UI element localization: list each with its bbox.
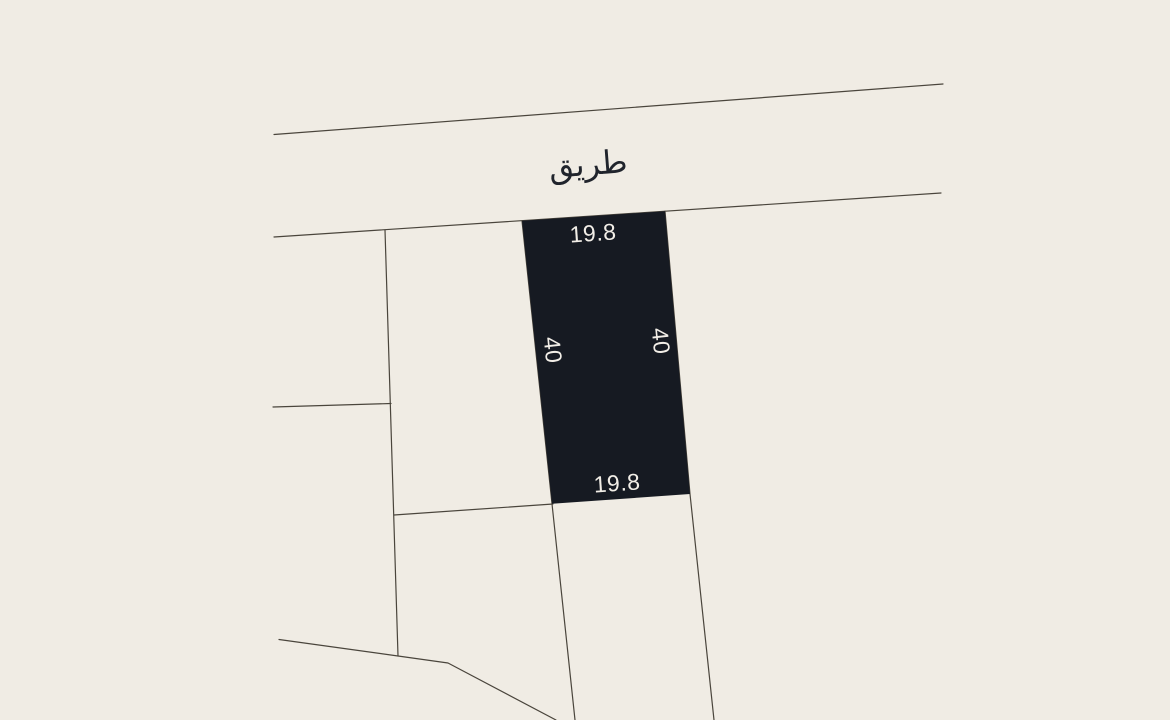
dimension-left-label: 40 <box>539 335 568 364</box>
road-label-group: طريق <box>547 142 628 186</box>
plot-map-svg: طريق 19.8 19.8 40 40 <box>0 0 1170 720</box>
cadastral-map: طريق 19.8 19.8 40 40 <box>0 0 1170 720</box>
dimension-right-label: 40 <box>647 326 676 355</box>
road-name-label: طريق <box>547 142 628 186</box>
dimension-top-label: 19.8 <box>569 218 617 247</box>
dimension-bottom-label: 19.8 <box>593 468 641 497</box>
